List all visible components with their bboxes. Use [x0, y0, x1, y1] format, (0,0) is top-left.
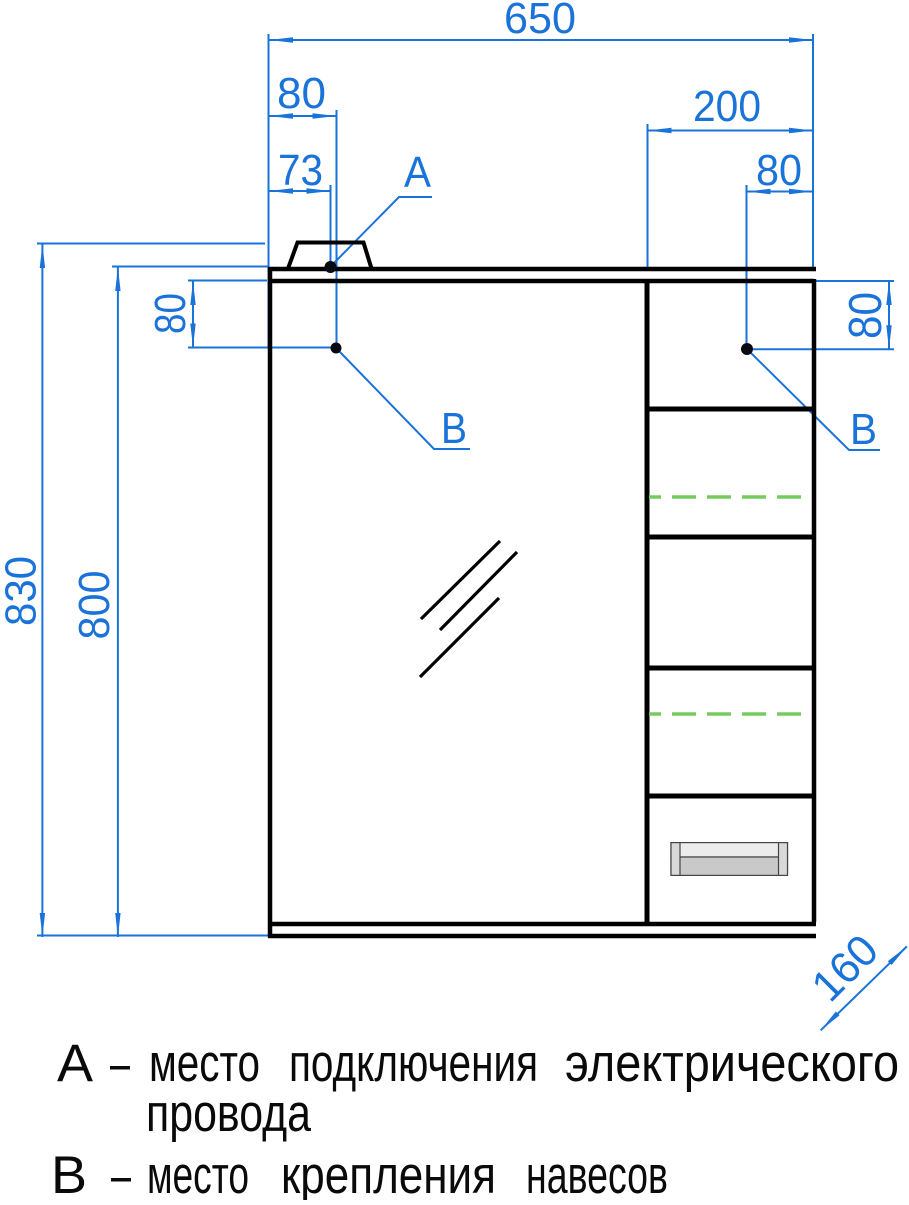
svg-text:В: В — [441, 404, 467, 453]
svg-text:провода: провода — [146, 1084, 311, 1143]
svg-text:место: место — [147, 1146, 249, 1200]
svg-text:800: 800 — [70, 571, 119, 640]
svg-text:80: 80 — [756, 146, 802, 195]
svg-text:73: 73 — [278, 146, 323, 195]
svg-text:А: А — [57, 1034, 94, 1093]
svg-text:навесов: навесов — [526, 1146, 668, 1200]
svg-text:80: 80 — [146, 293, 195, 334]
svg-text:80: 80 — [839, 292, 891, 339]
svg-text:А: А — [404, 148, 432, 197]
svg-text:200: 200 — [693, 82, 761, 131]
svg-text:крепления: крепления — [281, 1146, 496, 1200]
svg-text:подключения: подключения — [289, 1034, 538, 1093]
svg-text:В: В — [51, 1146, 87, 1200]
svg-text:электрического: электрического — [565, 1034, 899, 1093]
svg-text:830: 830 — [0, 556, 46, 626]
svg-text:–: – — [111, 1146, 131, 1200]
svg-text:В: В — [850, 405, 877, 454]
svg-text:80: 80 — [277, 69, 326, 118]
svg-text:650: 650 — [504, 0, 576, 43]
svg-text:–: – — [110, 1034, 130, 1093]
